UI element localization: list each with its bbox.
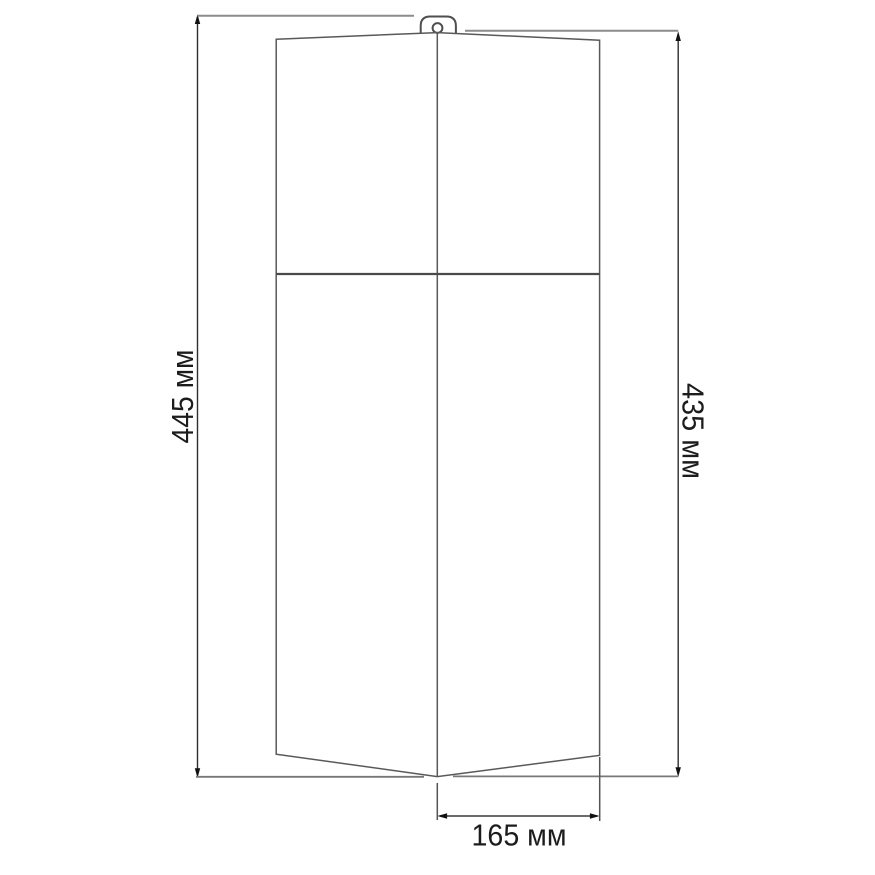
svg-text:165 мм: 165 мм xyxy=(472,818,567,853)
svg-text:435 мм: 435 мм xyxy=(676,383,711,479)
svg-text:445 мм: 445 мм xyxy=(165,350,200,444)
